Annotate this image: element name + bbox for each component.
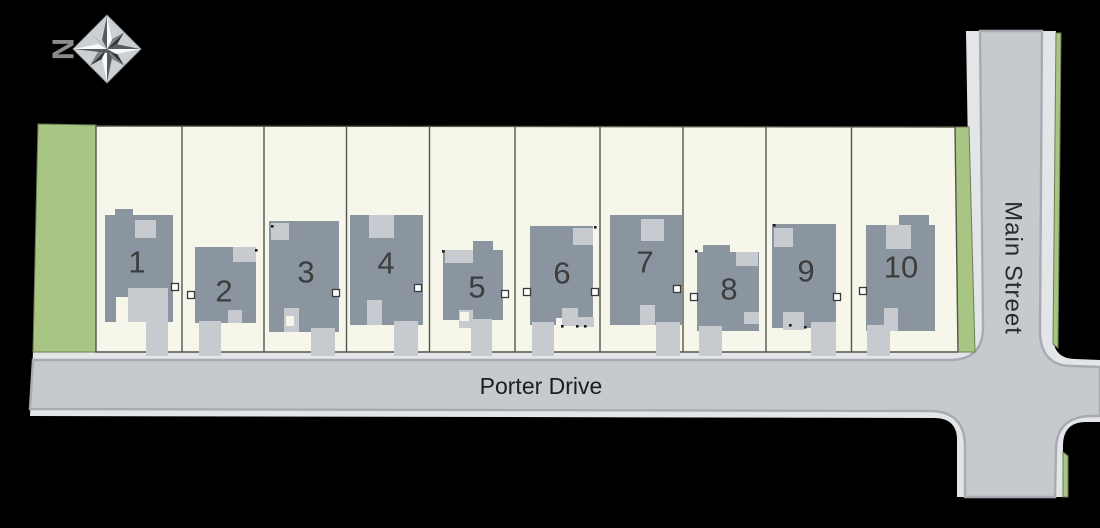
lot-number: 3 — [297, 255, 314, 290]
walkway — [744, 312, 759, 324]
greenspace-west-strip — [33, 124, 96, 352]
utility-box — [502, 291, 509, 298]
porch — [736, 252, 758, 266]
driveway — [394, 321, 418, 356]
driveway — [867, 325, 890, 356]
porch — [573, 228, 593, 245]
porch — [445, 250, 473, 263]
entry-porch — [562, 308, 578, 326]
house-wing — [473, 241, 493, 251]
survey-dot — [442, 250, 445, 253]
survey-dot — [594, 226, 597, 229]
porch — [233, 247, 256, 262]
survey-dot — [576, 325, 579, 328]
courtyard-cut — [460, 312, 469, 321]
utility-box — [188, 292, 195, 299]
utility-box — [691, 294, 698, 301]
site-plan: 1 2 3 4 — [0, 0, 1100, 528]
driveway — [199, 321, 221, 356]
driveway — [146, 288, 168, 356]
utility-box — [834, 294, 841, 301]
walkway — [128, 288, 146, 322]
survey-dot — [584, 325, 587, 328]
driveway — [532, 322, 554, 356]
lot-number: 2 — [215, 274, 232, 309]
survey-dot — [695, 250, 698, 253]
house-wing — [703, 245, 730, 252]
utility-box — [524, 289, 531, 296]
survey-dot — [255, 249, 258, 252]
site-plan-canvas: 1 2 3 4 — [0, 0, 1100, 528]
north-label: N — [46, 38, 81, 60]
porch — [641, 219, 664, 241]
utility-box — [860, 288, 867, 295]
driveway — [311, 328, 335, 356]
porch — [135, 220, 156, 238]
lot-number: 8 — [720, 272, 737, 307]
utility-box — [415, 285, 422, 292]
survey-dot — [561, 325, 564, 328]
lot-number: 7 — [636, 245, 653, 280]
lot-number: 5 — [468, 270, 485, 305]
survey-dot — [773, 224, 776, 227]
survey-dot — [789, 324, 792, 327]
courtyard-cut — [286, 316, 294, 326]
greenspace-south-parkway — [1063, 452, 1068, 497]
driveway — [656, 322, 680, 356]
survey-dot — [804, 326, 807, 329]
walkway — [228, 310, 242, 323]
porch — [774, 228, 793, 247]
entry-porch — [783, 312, 804, 330]
utility-box — [674, 286, 681, 293]
utility-box — [172, 284, 179, 291]
street-label-main-street: Main Street — [1000, 201, 1027, 335]
courtyard-cut — [116, 297, 128, 322]
walkway — [640, 305, 655, 325]
porch — [369, 215, 394, 238]
utility-box — [333, 290, 340, 297]
driveway — [811, 322, 836, 356]
driveway — [699, 326, 722, 356]
lot-number: 10 — [884, 250, 918, 285]
street-label-porter-drive: Porter Drive — [480, 373, 603, 399]
house-wing — [115, 209, 133, 216]
survey-dot — [271, 225, 274, 228]
lot-number: 9 — [797, 254, 814, 289]
walkway — [367, 300, 382, 325]
lot-number: 1 — [128, 245, 145, 280]
porch — [886, 225, 911, 249]
driveway — [471, 319, 492, 356]
lot-number: 6 — [553, 256, 570, 291]
lot-number: 4 — [377, 246, 394, 281]
porch — [271, 223, 289, 240]
utility-box — [592, 289, 599, 296]
